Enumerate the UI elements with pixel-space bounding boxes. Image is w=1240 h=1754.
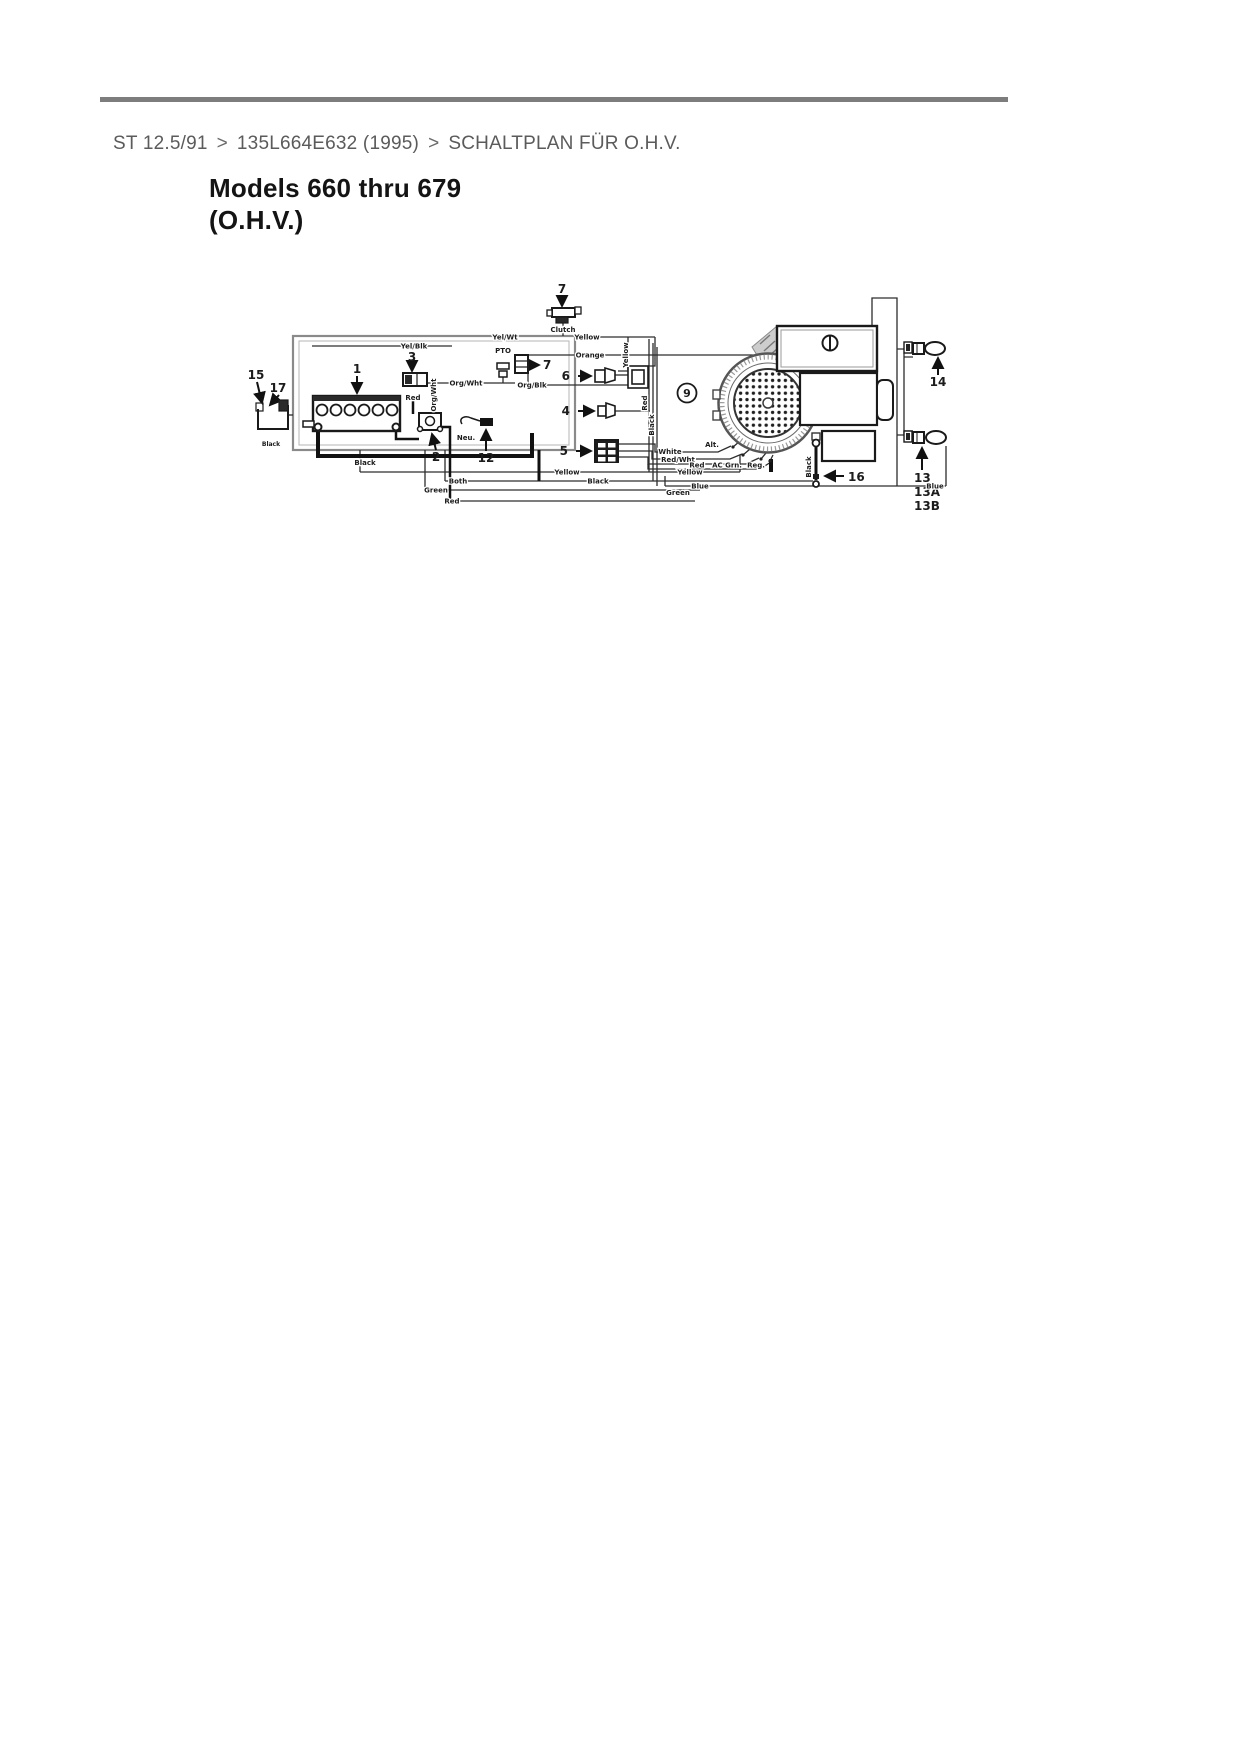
wire-label-black-vert: Black: [648, 414, 656, 436]
callout-17: 17: [270, 381, 287, 395]
callout-9: 9: [683, 387, 691, 400]
wire-label-yel-blk: Yel/Blk: [400, 343, 428, 351]
wire-label-pto: PTO: [495, 347, 511, 355]
diagram-title: Models 660 thru 679 (O.H.V.): [209, 172, 461, 236]
callout-14: 14: [930, 375, 947, 389]
pto-switch: [497, 363, 509, 377]
relay: [403, 373, 427, 386]
diagram-title-line1: Models 660 thru 679: [209, 172, 461, 204]
clutch-switch: [547, 307, 581, 323]
callout-16: 16: [848, 470, 865, 484]
callout-6: 6: [562, 369, 570, 383]
wire-label-org-blk: Org/Blk: [517, 382, 547, 390]
wire-label-reg: Reg.: [747, 462, 765, 470]
wire-label-clutch: Clutch: [551, 326, 576, 334]
wire-label-yellow-bus2: Yellow: [676, 469, 703, 477]
callout-12: 12: [478, 451, 495, 465]
wire-label-green-left: Green: [424, 487, 448, 495]
wire-label-yellow-top: Yellow: [573, 334, 600, 342]
wire-label-white: White: [658, 448, 681, 456]
callout-15: 15: [248, 368, 265, 382]
callout-2: 2: [432, 450, 440, 464]
callout-13b: 13B: [914, 499, 940, 513]
ground-terminal: [813, 474, 819, 487]
breadcrumb-separator: >: [217, 133, 228, 154]
connector-6: [595, 368, 615, 383]
wire-label-both: Both: [449, 478, 467, 486]
wire-label-yellow-vert: Yellow: [622, 342, 630, 369]
callout-1: 1: [353, 362, 361, 376]
wire-label-orange: Orange: [576, 352, 605, 360]
fuse-holder: [515, 355, 528, 373]
spark-plug-13: [904, 431, 946, 444]
wire-label-red-bus: Red: [444, 498, 459, 506]
wiring-diagram: 7 1 3 15 17 2 12 6 4 5 7 9 14 13 13A 13B…: [200, 243, 970, 523]
wire-label-connector-15-17: Black: [262, 441, 281, 448]
diagram-title-line2: (O.H.V.): [209, 204, 461, 236]
callout-5: 5: [560, 444, 568, 458]
wire-label-yel-wt: Yel/Wt: [491, 334, 518, 342]
wire-label-org-wht-vert: Org/Wht: [430, 378, 438, 412]
wire-label-red-relay: Red: [405, 394, 420, 402]
engine: [713, 326, 893, 472]
wire-label-ac-grn: AC Grn.: [712, 462, 742, 470]
wire-label-red-vert: Red: [641, 395, 649, 410]
breadcrumb: ST 12.5/91>135L664E632 (1995)>SCHALTPLAN…: [113, 133, 681, 155]
callout-3: 3: [408, 350, 416, 364]
document-page: { "page": { "breadcrumb": { "items": ["S…: [0, 0, 1240, 1754]
breadcrumb-item-section: SCHALTPLAN FÜR O.H.V.: [448, 133, 680, 154]
wire-label-blue-right: Blue: [926, 483, 944, 491]
wire-label-org-wht: Org/Wht: [449, 380, 483, 388]
spark-plug-14: [904, 342, 945, 355]
callout-7-mid: 7: [543, 358, 551, 372]
callout-4: 4: [562, 404, 570, 418]
callout-7-top: 7: [558, 282, 566, 296]
wire-label-black-right-vert: Black: [805, 456, 813, 478]
page-top-rule: [100, 97, 1008, 102]
breadcrumb-item-model[interactable]: ST 12.5/91: [113, 133, 208, 154]
battery: [303, 396, 400, 431]
breadcrumb-separator: >: [428, 133, 439, 154]
connector-4: [598, 403, 615, 418]
connector-block-5: [595, 440, 618, 462]
engine-block: [800, 373, 877, 425]
wire-label-green-right: Green: [666, 489, 690, 497]
wire-label-neu: Neu.: [457, 434, 475, 442]
wire-label-blue-mid: Blue: [691, 483, 709, 491]
connector-housing: [628, 366, 648, 388]
wire-label-black-bus: Black: [587, 478, 609, 486]
wire-label-black-battery: Black: [354, 459, 376, 467]
wire-label-yellow-bus1: Yellow: [553, 469, 580, 477]
starter-solenoid: [418, 413, 443, 432]
interlock-connector: [256, 400, 288, 429]
neutral-switch: [461, 417, 493, 426]
breadcrumb-item-serial[interactable]: 135L664E632 (1995): [237, 133, 419, 154]
wire-label-alt: Alt.: [705, 441, 719, 449]
